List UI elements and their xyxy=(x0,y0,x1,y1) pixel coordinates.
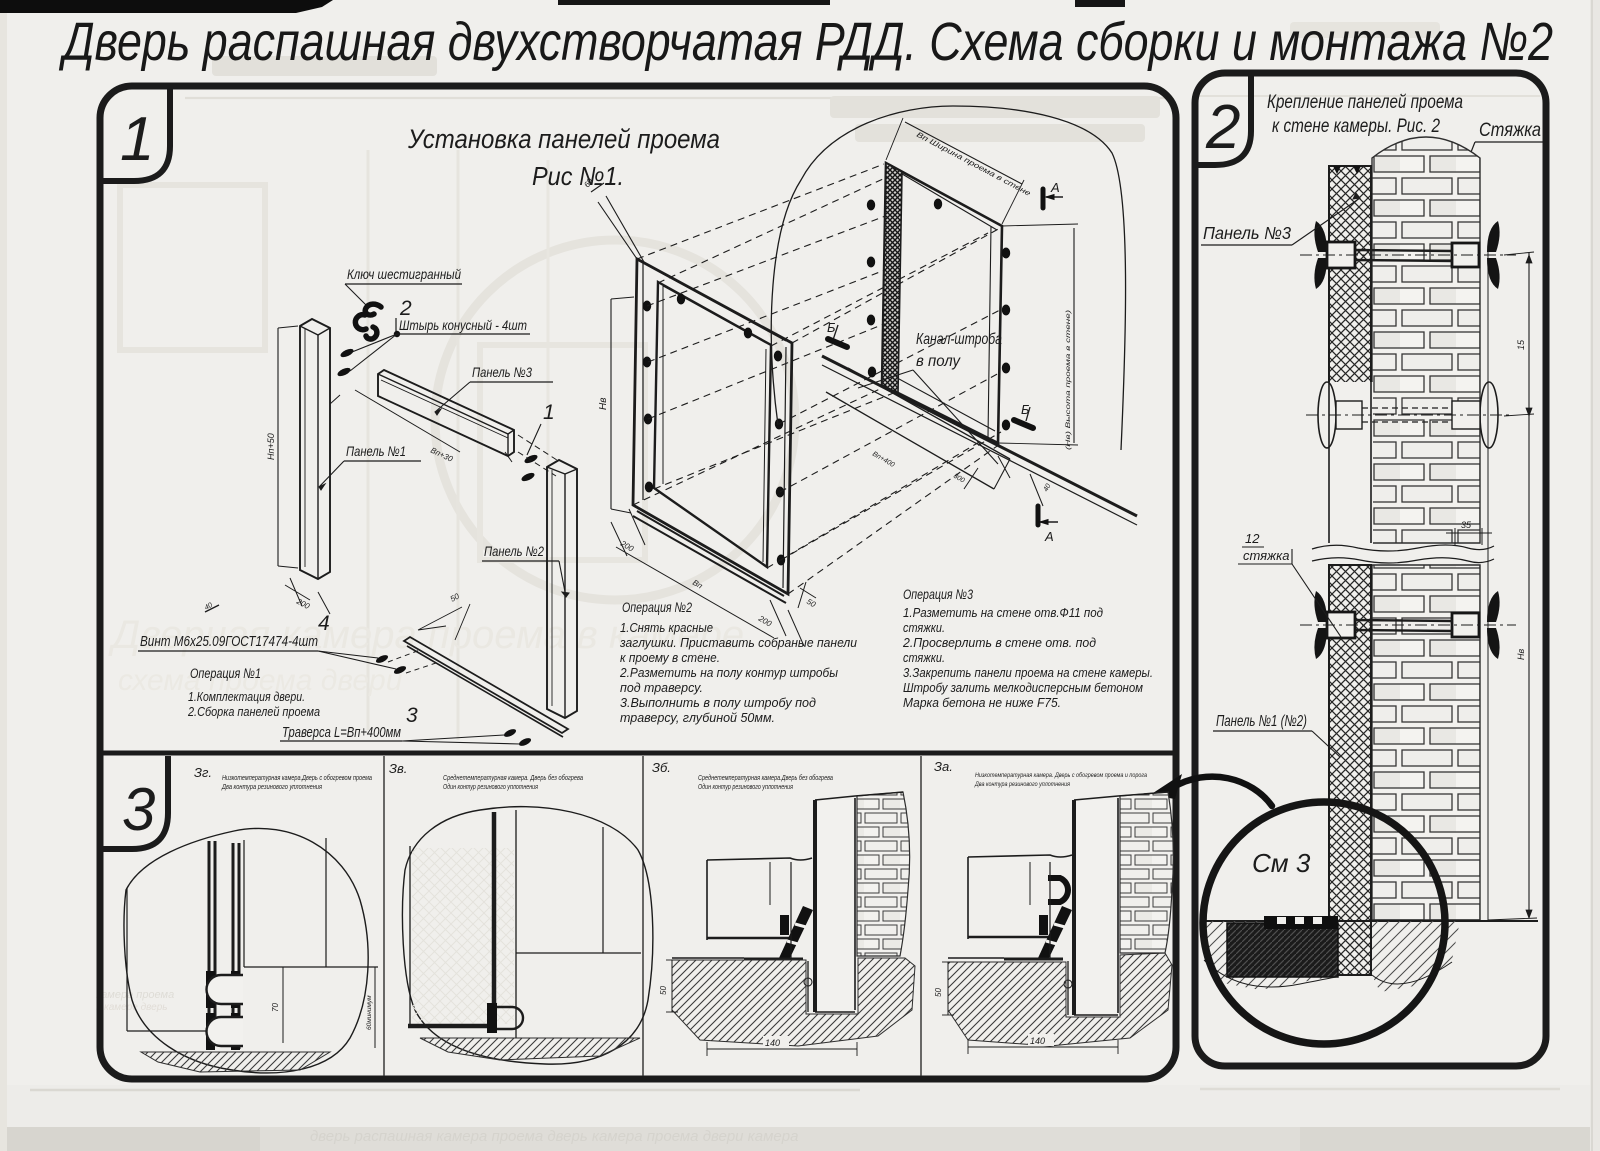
svg-text:Штырь конусный - 4шт: Штырь конусный - 4шт xyxy=(399,317,527,333)
svg-text:См 3: См 3 xyxy=(1252,848,1311,878)
svg-text:Нв: Нв xyxy=(1516,649,1526,660)
svg-text:Траверса L=Вп+400мм: Траверса L=Вп+400мм xyxy=(282,724,401,741)
svg-text:Низкотемпературная камера.Двер: Низкотемпературная камера.Дверь с обогре… xyxy=(222,774,372,782)
svg-text:к стене камеры. Рис. 2: к стене камеры. Рис. 2 xyxy=(1272,115,1440,137)
svg-text:3.Выполнить в полу штробу под: 3.Выполнить в полу штробу под xyxy=(620,695,816,710)
svg-text:Б: Б xyxy=(827,320,836,335)
svg-text:к проему в стене.: к проему в стене. xyxy=(620,650,720,665)
svg-text:1: 1 xyxy=(543,401,555,424)
svg-text:2.Разметить на полу контур штр: 2.Разметить на полу контур штробы xyxy=(619,665,838,680)
svg-text:2.Просверлить в стене отв. п: 2.Просверлить в стене отв. под xyxy=(902,635,1096,650)
svg-text:Ключ шестигранный: Ключ шестигранный xyxy=(347,266,461,282)
svg-text:3.Закрепить панели проема на с: 3.Закрепить панели проема на стене камер… xyxy=(903,665,1153,680)
svg-text:Два контура резинового уплотне: Два контура резинового уплотнения xyxy=(221,784,322,791)
svg-text:Панель №1 (№2): Панель №1 (№2) xyxy=(1216,713,1307,730)
svg-text:Панель №2: Панель №2 xyxy=(484,543,544,559)
svg-text:Рис №1.: Рис №1. xyxy=(532,161,624,191)
svg-text:А: А xyxy=(1044,529,1054,544)
svg-text:Операция №2: Операция №2 xyxy=(622,599,692,615)
svg-text:Среднетемпературная камера.Две: Среднетемпературная камера.Дверь без обо… xyxy=(698,774,833,782)
svg-text:в камере дверь: в камере дверь xyxy=(96,1002,168,1013)
svg-text:Операция №1: Операция №1 xyxy=(190,665,261,681)
svg-text:15: 15 xyxy=(1516,339,1526,350)
svg-text:камера проема: камера проема xyxy=(96,989,174,1001)
svg-text:(Нв) Высота проема в стене): (Нв) Высота проема в стене) xyxy=(1065,310,1072,450)
svg-text:70: 70 xyxy=(271,1003,280,1012)
svg-text:1.Разметить на стене отв.Ф11 п: 1.Разметить на стене отв.Ф11 под xyxy=(903,605,1103,620)
svg-text:35: 35 xyxy=(1461,520,1472,530)
svg-text:Зб.: Зб. xyxy=(652,760,671,775)
svg-text:50: 50 xyxy=(659,986,668,995)
svg-text:12: 12 xyxy=(1245,531,1260,546)
svg-text:под траверсу.: под траверсу. xyxy=(620,680,703,695)
svg-text:стяжка: стяжка xyxy=(1243,548,1289,563)
svg-text:Марка бетона не ниже F75.: Марка бетона не ниже F75. xyxy=(903,695,1061,710)
svg-text:140: 140 xyxy=(1030,1036,1045,1046)
svg-text:заглушки. Приставить собраные: заглушки. Приставить собраные панели xyxy=(619,635,857,650)
svg-text:Нп+50: Нп+50 xyxy=(266,433,276,460)
svg-text:Крепление панелей проема: Крепление панелей проема xyxy=(1267,91,1463,113)
svg-text:Панель №3: Панель №3 xyxy=(472,364,532,380)
svg-text:Нв: Нв xyxy=(598,398,609,410)
svg-text:3: 3 xyxy=(406,704,418,727)
svg-text:Среднетемпературная камера. Дв: Среднетемпературная камера. Дверь без об… xyxy=(443,774,583,782)
svg-text:Канал-штроба: Канал-штроба xyxy=(916,331,1002,348)
svg-text:Установка панелей проема: Установка панелей проема xyxy=(407,124,720,154)
svg-text:За.: За. xyxy=(934,759,953,774)
svg-text:Панель №3: Панель №3 xyxy=(1203,223,1291,243)
svg-text:А: А xyxy=(1050,180,1060,195)
svg-text:стяжки.: стяжки. xyxy=(903,650,945,665)
svg-text:4: 4 xyxy=(318,612,330,635)
svg-text:1.Комплектация двери.: 1.Комплектация двери. xyxy=(188,689,305,704)
svg-text:траверсу, глубиной 50мм.: траверсу, глубиной 50мм. xyxy=(620,710,775,725)
svg-text:Операция №3: Операция №3 xyxy=(903,586,973,602)
svg-text:Зг.: Зг. xyxy=(194,765,212,780)
svg-text:Панель №1: Панель №1 xyxy=(346,443,406,459)
svg-text:Два контура резинового уплотне: Два контура резинового уплотнения xyxy=(974,781,1070,788)
svg-text:Зв.: Зв. xyxy=(389,761,407,776)
svg-text:Стяжка: Стяжка xyxy=(1479,120,1541,141)
svg-text:в полу: в полу xyxy=(916,353,961,370)
svg-text:Штробу залить мелкодисперсным: Штробу залить мелкодисперсным бетоном xyxy=(903,680,1143,695)
svg-text:Один контур резинового уплотне: Один контур резинового уплотнения xyxy=(698,783,793,791)
svg-text:50: 50 xyxy=(934,988,943,997)
svg-text:дверь распашная камера проема: дверь распашная камера проема дверь каме… xyxy=(310,1128,798,1145)
svg-text:1: 1 xyxy=(120,105,154,174)
svg-text:1.Снять красные: 1.Снять красные xyxy=(620,620,713,635)
svg-text:Один контур резинового уплотне: Один контур резинового уплотнения xyxy=(443,783,538,791)
svg-text:2.Сборка панелей проема: 2.Сборка панелей проема xyxy=(187,704,320,719)
svg-text:3: 3 xyxy=(122,776,155,843)
svg-text:Дверь распашная двухстворчатая: Дверь распашная двухстворчатая РДД. Схем… xyxy=(59,12,1553,72)
svg-text:Винт М6х25.09ГОСТ17474-4шт: Винт М6х25.09ГОСТ17474-4шт xyxy=(140,634,318,650)
svg-text:Низкотемпературная камера. Две: Низкотемпературная камера. Дверь с обогр… xyxy=(975,771,1147,779)
svg-text:2: 2 xyxy=(1205,93,1240,162)
svg-text:стяжки.: стяжки. xyxy=(903,620,945,635)
svg-text:60минимум: 60минимум xyxy=(366,995,373,1030)
svg-text:140: 140 xyxy=(765,1038,780,1048)
